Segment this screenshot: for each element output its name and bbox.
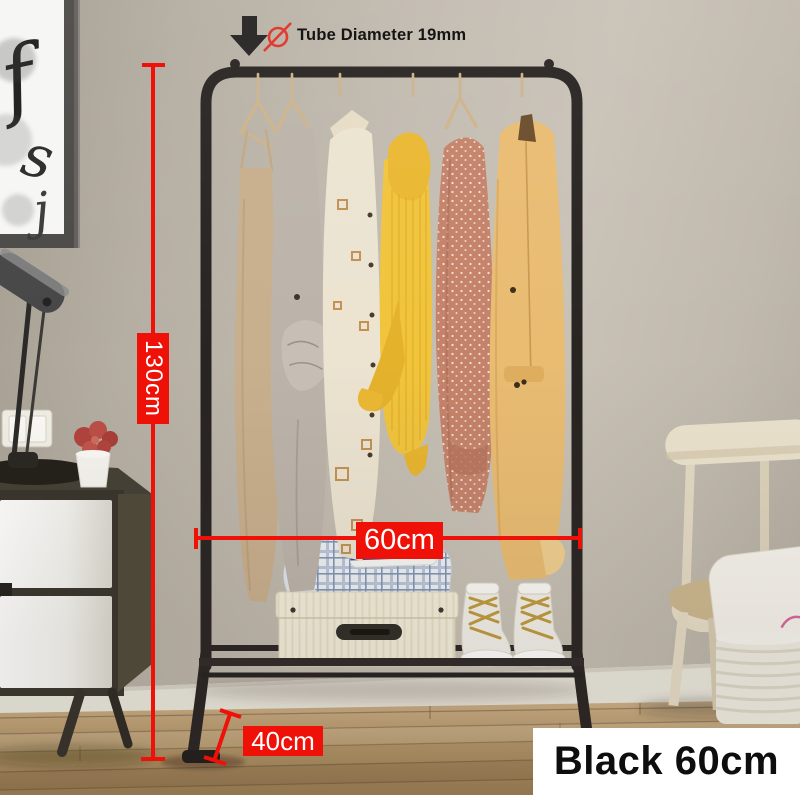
down-arrow-icon <box>230 16 268 56</box>
height-label: 130cm <box>137 333 169 424</box>
depth-dimension-line <box>204 710 241 764</box>
width-label: 60cm <box>356 522 443 559</box>
product-photo: f s j <box>0 0 800 795</box>
height-label-text: 130cm <box>141 340 165 417</box>
dimension-annotations <box>0 0 800 795</box>
tube-diameter-label: Tube Diameter 19mm <box>297 26 466 45</box>
variant-badge: Black 60cm <box>533 728 800 795</box>
diameter-icon <box>264 23 291 51</box>
depth-label: 40cm <box>243 726 323 756</box>
